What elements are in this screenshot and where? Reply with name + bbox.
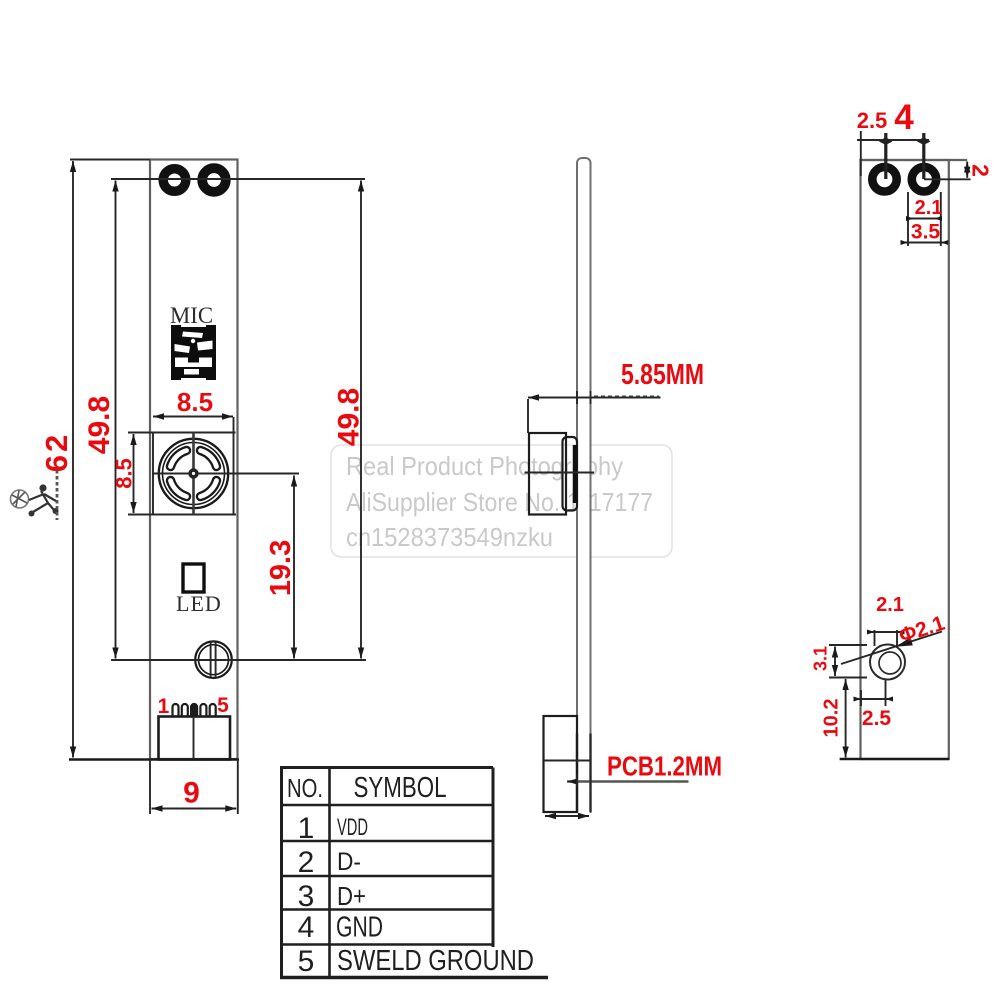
svg-text:62: 62: [39, 432, 74, 472]
svg-text:VDD: VDD: [337, 814, 368, 841]
svg-text:3.1: 3.1: [811, 646, 831, 671]
svg-text:SYMBOL: SYMBOL: [354, 772, 447, 804]
svg-text:SWELD GROUND: SWELD GROUND: [337, 945, 534, 977]
svg-text:4: 4: [894, 98, 914, 137]
svg-text:5: 5: [217, 694, 229, 717]
svg-text:2.1: 2.1: [915, 197, 943, 219]
svg-text:2.5: 2.5: [857, 108, 888, 133]
svg-text:10.2: 10.2: [821, 699, 843, 738]
svg-text:D-: D-: [337, 848, 361, 876]
svg-text:2.5: 2.5: [862, 707, 892, 730]
svg-text:8.5: 8.5: [177, 387, 213, 417]
svg-text:9: 9: [183, 777, 200, 810]
svg-text:8.5: 8.5: [112, 458, 137, 489]
svg-text:MIC: MIC: [170, 303, 213, 328]
svg-text:5: 5: [298, 945, 315, 978]
svg-text:D+: D+: [337, 881, 366, 911]
svg-text:49.8: 49.8: [333, 388, 366, 446]
svg-text:2: 2: [298, 846, 315, 879]
svg-text:GND: GND: [336, 912, 383, 944]
svg-text:5.85MM: 5.85MM: [621, 359, 704, 391]
svg-text:3: 3: [298, 880, 315, 913]
svg-text:NO.: NO.: [287, 773, 323, 803]
svg-text:49.8: 49.8: [83, 396, 116, 454]
svg-text:1: 1: [298, 812, 315, 845]
svg-text:3.5: 3.5: [911, 221, 941, 244]
svg-text:19.3: 19.3: [265, 540, 297, 596]
svg-text:2: 2: [968, 164, 994, 177]
svg-text:1: 1: [158, 695, 170, 718]
svg-text:2.1: 2.1: [876, 594, 904, 616]
svg-text:cn1528373549nzku: cn1528373549nzku: [346, 522, 553, 552]
svg-text:AliSupplier Store No. 1117177: AliSupplier Store No. 1117177: [346, 487, 653, 517]
svg-text:PCB1.2MM: PCB1.2MM: [607, 751, 722, 782]
svg-text:LED: LED: [176, 591, 222, 616]
svg-text:4: 4: [298, 911, 315, 944]
